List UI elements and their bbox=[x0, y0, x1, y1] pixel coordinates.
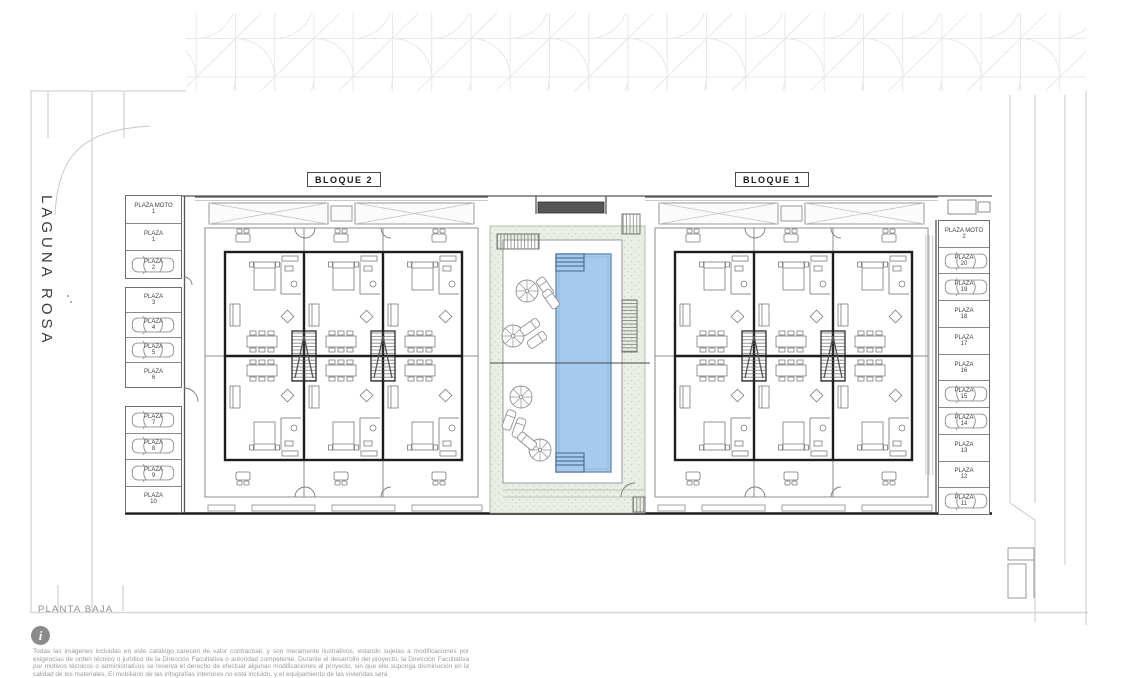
parking-stall: PLAZA20 bbox=[939, 248, 989, 275]
parking-stall-label: PLAZA1 bbox=[144, 231, 163, 243]
parking-stall-label: PLAZA14 bbox=[954, 415, 973, 427]
decorative-pattern-band bbox=[186, 13, 1086, 91]
parking-stall: PLAZA17 bbox=[939, 328, 989, 355]
parking-stall-label: PLAZA4 bbox=[144, 319, 163, 331]
parking-stall: PLAZA14 bbox=[939, 408, 989, 435]
street-name-laguna-rosa: LAGUNA ROSA bbox=[37, 195, 55, 321]
parking-stall: PLAZA2 bbox=[126, 251, 181, 278]
street-right-lines bbox=[1010, 91, 1086, 625]
parking-group: PLAZA3PLAZA4PLAZA5PLAZA6 bbox=[125, 287, 182, 388]
parking-stall: PLAZA MOTO2 bbox=[939, 221, 989, 248]
block-bloque-2 bbox=[195, 197, 488, 497]
parking-stall: PLAZA MOTO1 bbox=[126, 196, 181, 224]
parking-stall-label: PLAZA12 bbox=[954, 468, 973, 480]
parking-stall: PLAZA13 bbox=[939, 435, 989, 462]
parking-stall: PLAZA4 bbox=[126, 313, 181, 338]
parking-stall-label: PLAZA6 bbox=[144, 369, 163, 381]
parking-column-right: PLAZA MOTO2PLAZA20PLAZA19PLAZA18PLAZA17P… bbox=[938, 220, 990, 515]
parking-stall-label: PLAZA15 bbox=[954, 388, 973, 400]
side-structure bbox=[1008, 548, 1034, 598]
floor-plan-page: LAGUNA ROSA BLOQUE 2 BLOQUE 1 PLAZA MOTO… bbox=[0, 0, 1125, 678]
floor-label-planta-baja: PLANTA BAJA bbox=[38, 604, 113, 615]
parking-stall-label: PLAZA13 bbox=[954, 442, 973, 454]
courtyard bbox=[490, 196, 650, 513]
parking-stall: PLAZA15 bbox=[939, 381, 989, 408]
parking-stall-label: PLAZA9 bbox=[144, 467, 163, 479]
parking-stall-label: PLAZA8 bbox=[144, 440, 163, 452]
garage-door-gap bbox=[125, 279, 182, 287]
parking-stall-label: PLAZA10 bbox=[144, 493, 163, 505]
parking-stall-label: PLAZA7 bbox=[144, 414, 163, 426]
block-label-bloque-1: BLOQUE 1 bbox=[735, 172, 809, 187]
parking-stall-label: PLAZA16 bbox=[954, 362, 973, 374]
parking-stall: PLAZA9 bbox=[126, 460, 181, 487]
parking-stall: PLAZA19 bbox=[939, 274, 989, 301]
parking-stall-label: PLAZA19 bbox=[954, 281, 973, 293]
parking-stall-label: PLAZA3 bbox=[144, 294, 163, 306]
parking-stall: PLAZA11 bbox=[939, 488, 989, 514]
garage-door-gap bbox=[125, 388, 182, 406]
parking-stall-label: PLAZA MOTO2 bbox=[945, 228, 983, 240]
parking-stall-label: PLAZA17 bbox=[954, 335, 973, 347]
parking-stall: PLAZA1 bbox=[126, 224, 181, 252]
parking-stall-label: PLAZA11 bbox=[954, 495, 973, 507]
entrance-canopy bbox=[538, 202, 604, 213]
parking-stall-label: PLAZA20 bbox=[954, 255, 973, 267]
parking-group: PLAZA MOTO1PLAZA1PLAZA2 bbox=[125, 195, 182, 279]
parking-stall-label: PLAZA2 bbox=[144, 259, 163, 271]
parking-stall: PLAZA3 bbox=[126, 288, 181, 313]
parking-stall: PLAZA7 bbox=[126, 407, 181, 434]
parking-stall-label: PLAZA5 bbox=[144, 344, 163, 356]
info-icon: i bbox=[31, 626, 50, 645]
parking-stall: PLAZA16 bbox=[939, 355, 989, 382]
parking-stall: PLAZA12 bbox=[939, 462, 989, 489]
legal-disclaimer-text: Todas las imágenes incluidas en este cat… bbox=[33, 648, 469, 678]
parking-group: PLAZA7PLAZA8PLAZA9PLAZA10 bbox=[125, 406, 182, 513]
parking-stall-label: PLAZA MOTO1 bbox=[134, 203, 172, 215]
parking-stall: PLAZA6 bbox=[126, 363, 181, 387]
block-bloque-1 bbox=[645, 197, 938, 497]
parking-stall-label: PLAZA18 bbox=[954, 308, 973, 320]
parking-stall: PLAZA8 bbox=[126, 434, 181, 461]
parking-group: PLAZA MOTO2PLAZA20PLAZA19PLAZA18PLAZA17P… bbox=[938, 220, 990, 515]
parking-stall: PLAZA10 bbox=[126, 487, 181, 513]
parking-stall: PLAZA18 bbox=[939, 301, 989, 328]
parking-column-left: PLAZA MOTO1PLAZA1PLAZA2 PLAZA3PLAZA4PLAZ… bbox=[125, 195, 182, 513]
parking-stall: PLAZA5 bbox=[126, 338, 181, 363]
block-label-bloque-2: BLOQUE 2 bbox=[307, 172, 381, 187]
